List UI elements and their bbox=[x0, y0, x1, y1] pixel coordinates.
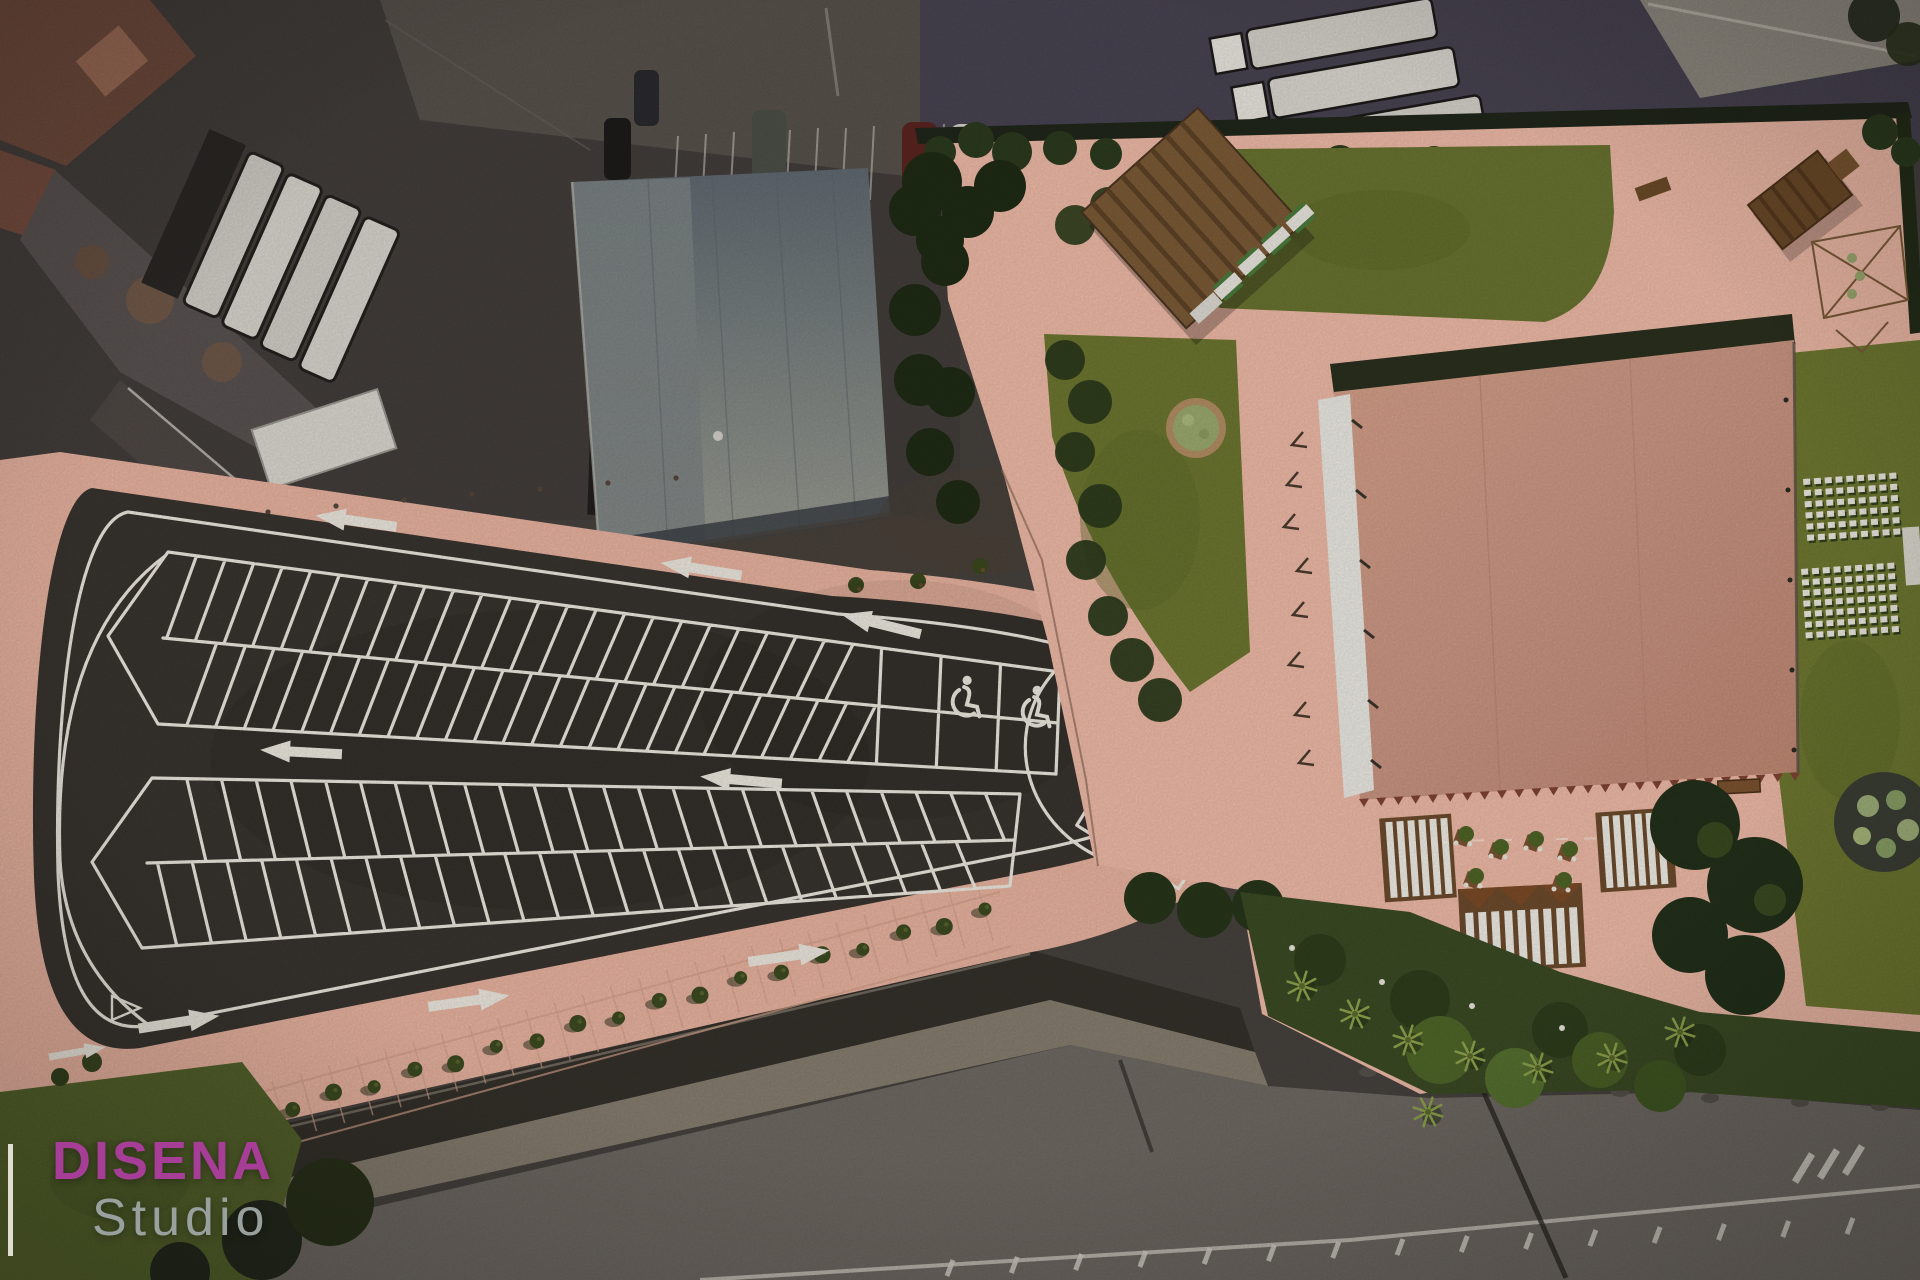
watermark-brand: DISENA bbox=[52, 1130, 274, 1192]
watermark-studio: Studio bbox=[92, 1188, 269, 1248]
watermark-divider bbox=[8, 1144, 13, 1256]
aerial-site-plan: DISENA Studio bbox=[0, 0, 1920, 1280]
vignette bbox=[0, 0, 1920, 1280]
site-plan-canvas bbox=[0, 0, 1920, 1280]
